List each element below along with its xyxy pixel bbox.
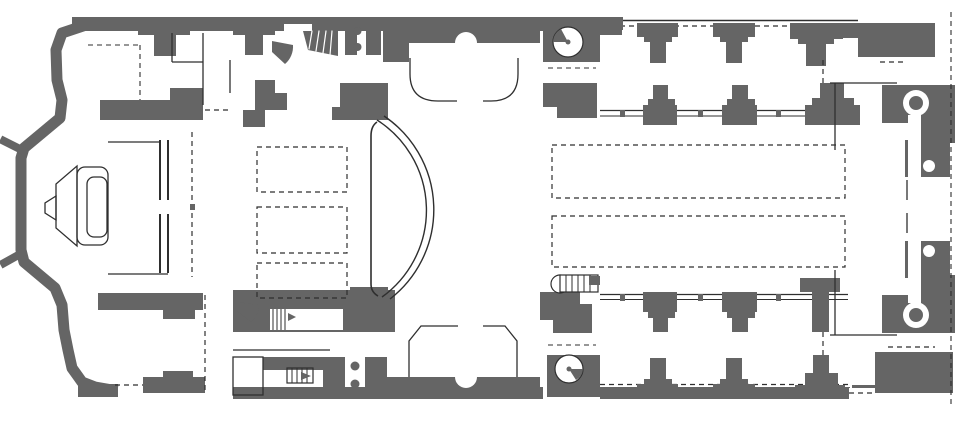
altar-steps-outer: [56, 166, 77, 246]
arcade-pier-s1-base: [643, 292, 677, 312]
base-mark-n2: [698, 110, 703, 117]
north-niche: [455, 32, 477, 54]
chancel-axis-mark: [190, 204, 195, 210]
chapel-north-outline-left: [410, 58, 457, 101]
south-wall-door-gap: [849, 388, 875, 400]
chancel-arch-pier-face: [371, 122, 378, 296]
arcade-pier-n3-base: [805, 105, 860, 125]
l-pier-north: [543, 83, 597, 118]
base-mark-s3: [776, 294, 781, 301]
arcade-pier-n2-base: [722, 105, 757, 125]
pulpit-stair-landing: [589, 276, 600, 285]
base-mark-n1: [620, 110, 625, 117]
arcade-pier-s3-stem: [812, 292, 829, 332]
arcade-pier-n1-stem: [653, 85, 668, 102]
winder-stair-north: [303, 31, 338, 56]
floor-plan-canvas: [0, 0, 960, 421]
south-niche: [455, 366, 477, 388]
nave-pew-block-north: [552, 145, 845, 198]
arcade-pier-s3-bar: [800, 278, 840, 292]
chancel-arch-inner: [377, 120, 426, 297]
choir-stall-1: [257, 147, 347, 192]
chapel-south-outline-left: [409, 326, 458, 377]
north-wall-left: [72, 17, 380, 31]
wall-pier-n1-stem: [650, 40, 666, 63]
corner-mass-ne: [838, 23, 935, 57]
volute-pier-se-core: [909, 308, 923, 322]
base-mark-s2: [698, 294, 703, 301]
pier-nw1-cap: [138, 20, 190, 35]
choir-stall-2: [257, 207, 347, 253]
vase-door-south-bump-1: [351, 362, 360, 371]
vase-door-south-left-jamb: [323, 357, 345, 395]
vase-door-south-bump-2: [351, 380, 360, 389]
arcade-pier-n2-stem: [732, 85, 748, 102]
wall-pier-s1-stem: [650, 358, 666, 381]
spiral-stair-north-newel: [566, 40, 571, 45]
vase-door-north-bump-1: [354, 27, 362, 35]
nave-pew-block-south: [552, 216, 845, 267]
volute-pier-se-notch: [923, 245, 935, 257]
altar-steps-inner: [45, 196, 56, 220]
apse-buttress-top: [4, 141, 22, 150]
arcade-pier-s2-base: [722, 292, 757, 312]
chapel-north-outline-right: [483, 58, 518, 101]
wall-pier-s3-stem: [813, 355, 829, 375]
arcade-pier-n3-stem: [820, 83, 844, 101]
south-wall-a: [233, 387, 543, 399]
arch-pier-north: [332, 83, 388, 120]
spiral-stair-south-newel: [567, 367, 572, 372]
vase-door-north-right-jamb: [366, 22, 381, 55]
volute-pier-ne-notch: [923, 160, 935, 172]
south-band-left: [143, 377, 205, 393]
vase-door-north-bump-2: [354, 43, 362, 51]
apse-foot-south: [78, 384, 118, 397]
wall-pier-n2-stem: [726, 40, 742, 63]
wall-pier-n2-cap: [713, 23, 755, 37]
wall-pier-s3-shoulder: [805, 373, 838, 385]
south-wall-b: [600, 387, 850, 399]
floor-plan-svg: [0, 0, 960, 421]
fan-stair-north: [272, 41, 293, 64]
corner-mass-se: [852, 352, 953, 393]
base-mark-s1: [620, 294, 625, 301]
wall-pier-n3-cap: [790, 23, 843, 39]
pier-nw2-cap: [233, 20, 275, 35]
volute-pier-ne-slot: [908, 115, 921, 177]
pier-nw1-stem: [154, 35, 176, 56]
arcade-pier-n1-base: [643, 105, 677, 125]
volute-pier-se-slot: [908, 241, 921, 303]
pier-nw2-stem: [245, 35, 263, 55]
altar-table: [87, 177, 107, 237]
altar-platform: [77, 167, 108, 245]
big-pier-south: [540, 292, 592, 333]
north-wall-mid: [380, 17, 545, 31]
vase-door-south-right-jamb: [365, 357, 387, 395]
choir-band-south: [98, 293, 203, 310]
base-mark-n3: [776, 110, 781, 117]
arch-pier-south: [350, 287, 388, 332]
wall-pier-n1-cap: [637, 23, 678, 37]
arcade-pier-s1-stem: [653, 315, 668, 332]
choir-band-north-step: [170, 88, 203, 120]
apse-wall: [21, 27, 112, 390]
choir-band-south-bump: [163, 310, 195, 319]
chapel-south-outline-right: [483, 326, 517, 377]
south-band-left-bump: [163, 371, 193, 379]
volute-pier-ne-core: [909, 96, 923, 110]
wall-pier-s2-stem: [726, 358, 742, 381]
sw-stair-arrow: [301, 372, 311, 380]
zigzag-pier-north: [243, 80, 287, 127]
north-wall-step: [598, 30, 622, 35]
arcade-pier-s2-stem: [732, 315, 748, 332]
